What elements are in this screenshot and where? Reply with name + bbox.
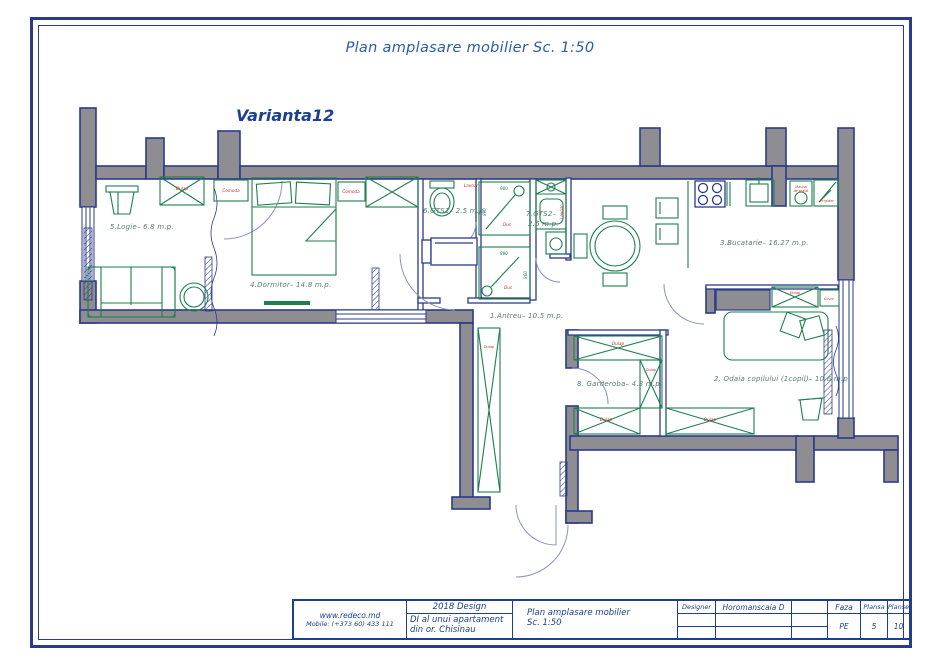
label-dus: Dus [503, 222, 512, 227]
designer-name: Horomanscaia D [716, 601, 791, 614]
partition [530, 179, 536, 300]
plant-pot-body [110, 192, 134, 214]
wall-segment [240, 166, 840, 179]
label-dulap: Dulap [646, 368, 656, 372]
title-block-designer-name-cell: Horomanscaia D [715, 601, 791, 638]
empty-row [716, 614, 791, 627]
stove-burner [699, 196, 708, 205]
radiator-hatch [560, 462, 567, 496]
label-frigider: Frigider [820, 199, 834, 203]
window-right [839, 280, 853, 418]
title-block-project-cell: 2018 Design DI al unui apartament din or… [406, 601, 512, 638]
title-block-empty-cell [791, 601, 827, 638]
kitchen-sink-basin [750, 184, 768, 202]
title-block-plansa-cell: Plansa 5 [860, 601, 887, 638]
wall-segment [570, 436, 798, 450]
empty-row [792, 614, 827, 627]
dim-shower1-height: 890 [482, 208, 487, 216]
title-block-faza-cell: Faza PE [827, 601, 860, 638]
dim-shower2-height: 860 [523, 271, 528, 279]
shower-diagonal [491, 257, 519, 287]
label-comoda: Comoda [222, 188, 240, 193]
title-block-designer-label-cell: Designer [677, 601, 715, 638]
room-label-gts2-line2: 2.6 m.p. [528, 220, 559, 228]
room-label-gts1: 6.GTS1– 2.5 m.p. [423, 207, 486, 215]
pouf-rim [798, 398, 824, 400]
designer-label: Designer [678, 601, 715, 614]
year-design-text: 2018 Design [407, 601, 512, 614]
label-comoda: Comoda [342, 189, 360, 194]
stove-burner [713, 184, 722, 193]
chair [603, 273, 627, 286]
room-odaia: Dulap Covor Dulap 2. Odaia copilului (1c… [666, 287, 850, 434]
chair [574, 234, 587, 258]
bed-pillow [780, 312, 806, 338]
label-lavoar: Lavoar [464, 183, 479, 188]
chair [603, 206, 627, 219]
bed-pillow [256, 182, 291, 205]
partition [568, 330, 668, 335]
bed-pillow [800, 316, 824, 340]
corner-sink [546, 232, 566, 254]
label-dulap: Dulap [612, 341, 625, 346]
label-covor: Covor [824, 297, 835, 301]
bed-fold [306, 209, 336, 241]
wall-segment [838, 418, 854, 438]
partition [566, 178, 571, 260]
bath [431, 238, 477, 265]
door-arc-entry-outer [516, 525, 568, 577]
stove-burner [713, 196, 722, 205]
room-logie: 5.Logie– 6.8 m.p. [88, 186, 208, 317]
dishwasher-drum [795, 192, 807, 204]
rug [264, 301, 310, 305]
dim-shower1-width: 900 [500, 186, 508, 191]
chair [656, 224, 678, 244]
room-label-bucatarie: 3.Bucatarie– 16.27 m.p. [720, 239, 809, 247]
room-label-dormitor: 4.Dormitor– 14.8 m.p. [250, 281, 331, 289]
wc-tank [430, 181, 454, 188]
chair [656, 198, 678, 218]
faza-value: PE [828, 614, 860, 638]
title-block-contact-cell: www.redeco.md Mobile: (+373 60) 433 111 [294, 601, 406, 638]
door-arc-gts2 [536, 258, 560, 282]
planse-value: 10 [888, 614, 909, 638]
drawing-title: Plan amplasare mobilier Sc. 1:50 [527, 608, 630, 628]
room-bucatarie: Masina de spalat Frigider 3.Bucatarie– 1… [574, 177, 838, 286]
room-garderoba: Dulap Dulap Dulap 8. Garderoba– 4.3 m.p. [574, 336, 662, 434]
dining-table-inner [595, 226, 635, 266]
door-arc-odaia [664, 284, 704, 324]
drawing-title-line1: Plan amplasare mobilier [527, 608, 630, 618]
project-line1: DI al unui apartament [410, 615, 503, 625]
wall-segment [80, 108, 96, 207]
stove-burner [699, 184, 708, 193]
phone-text: Mobile: (+373 60) 433 111 [306, 620, 394, 628]
wall-segment [640, 128, 660, 166]
dim-shower2-width: 880 [500, 251, 508, 256]
plant-pot [106, 186, 138, 192]
room-label-antreu: 1.Antreu– 10.5 m.p. [490, 312, 563, 320]
faza-label: Faza [828, 601, 860, 614]
room-label-odaia: 2. Odaia copilului (1copil)– 10.6 m.p. [714, 375, 850, 383]
bed-pillow [295, 182, 330, 205]
wall-segment [218, 131, 240, 179]
shower-head [514, 186, 524, 196]
wall-segment [460, 323, 473, 499]
shower-cabins: 900 890 Dus 880 860 Dus [479, 182, 530, 299]
child-bed [724, 312, 828, 360]
label-dulap: Dulap [176, 186, 189, 191]
room-antreu: Dulap 1.Antreu– 10.5 m.p. [478, 312, 563, 492]
partition [418, 298, 440, 303]
room-label-logie: 5.Logie– 6.8 m.p. [110, 223, 174, 231]
dining-table [590, 221, 640, 271]
shower-head [482, 286, 492, 296]
door-arc-entry [516, 505, 556, 545]
room-label-gts2: 7.GTS2– [526, 210, 556, 218]
wall-segment [766, 128, 786, 166]
empty-row [792, 601, 827, 614]
plansa-value: 5 [861, 614, 887, 638]
label-dulap: Dulap [704, 417, 717, 422]
label-dulap: Dulap [484, 345, 495, 349]
drawing-sheet: Plan amplasare mobilier Sc. 1:50 Variant… [0, 0, 940, 665]
round-table-inner [184, 287, 204, 307]
title-block-drawing-title-cell: Plan amplasare mobilier Sc. 1:50 [512, 601, 677, 638]
wall-segment [838, 128, 854, 280]
title-block: www.redeco.md Mobile: (+373 60) 433 111 … [292, 599, 911, 640]
wall-segment [146, 138, 164, 179]
walls [80, 108, 898, 523]
floor-plan: 5.Logie– 6.8 m.p. Dulap Comoda Comoda 4.… [0, 0, 940, 665]
partition [550, 254, 570, 258]
title-block-planse-cell: Planse 10 [887, 601, 909, 638]
wall-segment [796, 436, 814, 482]
label-lavoar: Lavoar [559, 205, 564, 220]
room-label-garderoba: 8. Garderoba– 4.3 m.p. [577, 380, 662, 388]
wall-segment [452, 497, 490, 509]
website-text: www.redeco.md [320, 611, 381, 620]
radiator-hatch [205, 257, 212, 311]
radiator-hatch [372, 268, 379, 310]
empty-row [678, 614, 715, 627]
curtain-squiggle [834, 326, 839, 396]
wall-segment [566, 406, 578, 523]
corner-sink-basin [550, 238, 562, 250]
wall-segment [706, 287, 715, 313]
bed [252, 178, 336, 275]
project-line2: din or. Chisinau [410, 625, 503, 635]
headboard-bench [716, 290, 770, 310]
wall-segment [96, 166, 146, 179]
label-dus: Dus [504, 285, 513, 290]
bath-step [422, 240, 431, 263]
window-dormitor [336, 310, 426, 323]
wall-segment [884, 450, 898, 482]
wall-segment [814, 436, 898, 450]
plansa-label: Plansa [861, 601, 887, 614]
label-masina-line2: de spalat [794, 189, 809, 193]
drawing-title-line2: Sc. 1:50 [527, 618, 630, 628]
pouf [800, 398, 822, 420]
label-dulap: Dulap [600, 417, 613, 422]
wall-segment [566, 511, 592, 523]
planse-label: Planse [888, 601, 909, 614]
project-description: DI al unui apartament din or. Chisinau [410, 615, 503, 635]
label-dulap: Dulap [790, 291, 801, 295]
